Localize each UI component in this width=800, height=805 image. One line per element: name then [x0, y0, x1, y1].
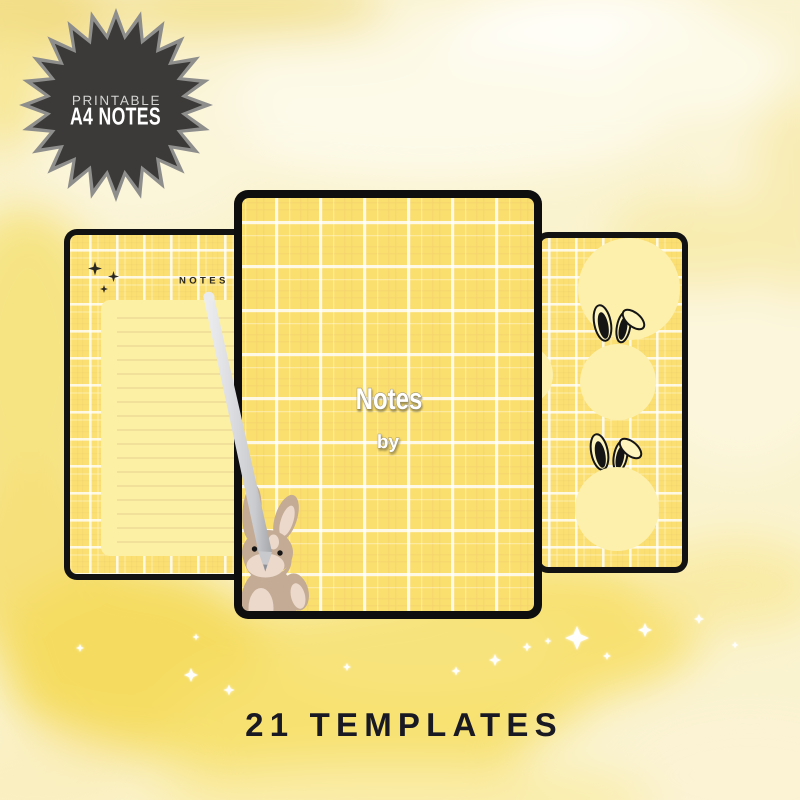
svg-text:NOTES: NOTES	[179, 276, 229, 287]
svg-text:A4 NOTES: A4 NOTES	[70, 104, 161, 131]
svg-text:by: by	[377, 432, 400, 453]
svg-text:21 TEMPLATES: 21 TEMPLATES	[245, 706, 563, 743]
svg-text:Notes: Notes	[356, 383, 423, 416]
